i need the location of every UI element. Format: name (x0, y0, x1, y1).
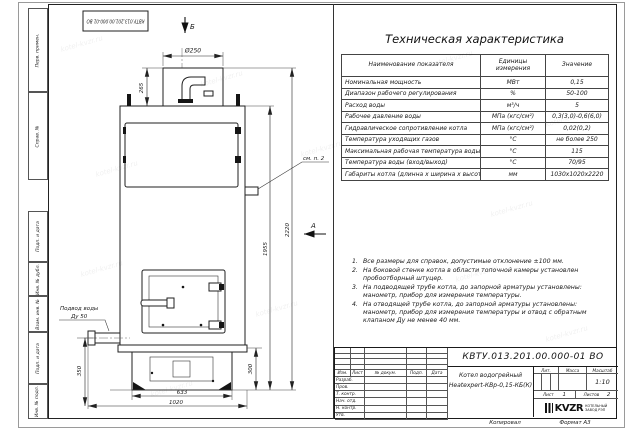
table-row: Температура воды (вход/выход)°С70/95 (342, 157, 609, 169)
view-a-arrow: А (304, 222, 326, 234)
note-item: 4.На отводящей трубе котла, до запорной … (352, 301, 604, 325)
table-row: Максимальная рабочая температура воды°С1… (342, 146, 609, 158)
sheet-count-row: Лист 1 Листов 2 (534, 391, 618, 399)
lit-label: Лит. (534, 367, 559, 374)
water-inlet-label: Подвод воды (60, 306, 99, 312)
format-label: Формат А3 (535, 420, 615, 426)
water-inlet: Подвод воды Ду 50 (59, 306, 130, 345)
manufacturer-logo: KVZR КОТЕЛЬНЫЙ ЗАВОД РЭП (534, 399, 618, 417)
doc-number-top-box: КВТУ.013.201.00.000-01 ВО (83, 11, 148, 31)
row-utv: Утв. (335, 413, 365, 420)
note-item: 3.На подводящей трубе котла, до запорной… (352, 284, 604, 300)
note-item: 1.Все размеры для справок, допустимые от… (352, 258, 604, 266)
door-handle (141, 300, 169, 306)
door-hinge (235, 127, 241, 134)
dim-diameter-250: Ø250 (163, 48, 223, 67)
col-list: Лист (351, 370, 365, 377)
product-name-line1: Котел водогрейный (448, 371, 533, 381)
scale-value: 1:10 (587, 374, 618, 391)
top-stud (236, 94, 240, 106)
callout-see-note-2: см. п. 2 (303, 156, 325, 162)
sheet-label: Лист (543, 392, 554, 397)
top-stud (127, 94, 131, 106)
svg-text:265: 265 (139, 82, 145, 93)
tech-characteristics-title: Техническая характеристика (341, 32, 608, 46)
col-header-name: Наименование показателя (342, 55, 481, 77)
table-row: Диапазон рабочего регулирования%50-100 (342, 88, 609, 100)
lit-mass-scale-header: Лит. Масса Масштаб (534, 367, 618, 374)
elbow-foot (204, 91, 213, 96)
title-block: Изм. Лист № докум. Подп. Дата Разраб. Пр… (334, 347, 617, 419)
dim-1955: 1955 (245, 106, 274, 390)
row-tkontr: Т. контр. (335, 391, 365, 398)
col-docnum: № докум. (365, 370, 407, 377)
base-pedestal (110, 345, 262, 390)
row-prov: Пров. (335, 384, 365, 391)
document-number: КВТУ.013.201.00.000-01 ВО (448, 348, 618, 367)
table-row: Габариты котла (длинна х ширина х высота… (342, 169, 609, 181)
view-b-arrow: Б (185, 17, 195, 33)
boiler-drawing: КВТУ.013.201.00.000-01 ВО Б Ø250 265 (30, 4, 334, 424)
svg-text:1020: 1020 (169, 400, 183, 406)
col-header-value: Значение (546, 55, 609, 77)
doc-number-top-text: КВТУ.013.201.00.000-01 ВО (86, 18, 144, 24)
view-a-label: А (310, 222, 316, 230)
table-row: Номинальная мощностьМВт0,15 (342, 77, 609, 89)
dim-300: 300 (247, 348, 262, 390)
note-item: 2.На боковой стенке котла в области топо… (352, 267, 604, 283)
col-podp: Подп. (407, 370, 427, 377)
kvzr-logo-subtext: КОТЕЛЬНЫЙ ЗАВОД РЭП (585, 404, 607, 412)
table-row: Гидравлическое сопротивление котлаМПа (к… (342, 123, 609, 135)
col-izm: Изм. (335, 370, 351, 377)
table-row: Расход водым³/ч5 (342, 100, 609, 112)
table-header-row: Наименование показателя Единицы измерени… (342, 55, 609, 77)
water-inlet-label: Ду 50 (70, 314, 88, 320)
svg-text:350: 350 (77, 365, 83, 376)
lower-door (141, 270, 225, 333)
kvzr-logo-icon (545, 403, 553, 413)
upper-door (123, 123, 241, 187)
dim-633: 633 (132, 390, 232, 400)
table-row: Температура уходящих газов°Сне более 250 (342, 134, 609, 146)
row-razrab: Разраб. (335, 377, 365, 384)
scale-label: Масштаб (587, 367, 618, 374)
svg-text:633: 633 (177, 390, 188, 396)
mass-label: Масса (559, 367, 587, 374)
kvzr-logo-text: KVZR (555, 403, 583, 414)
table-row: Рабочее давление водыМПа (кгс/см²)0,3(3,… (342, 111, 609, 123)
row-nkontr: Н. контр. (335, 406, 365, 413)
svg-text:2220: 2220 (285, 223, 291, 237)
tech-characteristics-table: Наименование показателя Единицы измерени… (341, 54, 609, 181)
sheet-value: 1 (563, 392, 567, 398)
col-data: Дата (427, 370, 448, 377)
product-name: Котел водогрейный Heatexpert-КВр-0,15-КБ… (448, 367, 534, 417)
sheets-value: 2 (607, 392, 611, 398)
row-nachotd: Нач. отд. (335, 398, 365, 405)
dim-265: 265 (139, 68, 163, 106)
sampling-fitting-callout: см. п. 2 (245, 156, 329, 195)
svg-text:1955: 1955 (263, 242, 269, 256)
product-name-line2: Heatexpert-КВр-0,15-КБ(К) (448, 381, 533, 391)
view-b-label: Б (190, 23, 195, 31)
sheets-label: Листов (584, 392, 600, 397)
door-hinge (235, 156, 241, 163)
dim-350: 350 (77, 338, 96, 406)
lit-mass-scale-values: 1:10 (534, 374, 618, 391)
svg-text:Ø250: Ø250 (184, 48, 201, 55)
notes-list: 1.Все размеры для справок, допустимые от… (352, 258, 604, 327)
chimney (163, 68, 223, 106)
svg-text:300: 300 (248, 363, 254, 374)
elbow-flange (178, 99, 193, 103)
title-block-left-grid: Изм. Лист № докум. Подп. Дата Разраб. Пр… (335, 348, 448, 417)
drawing-sheet: kotel-kvzr.ru kotel-kvzr.ru kotel-kvzr.r… (0, 0, 644, 430)
col-header-units: Единицы измерения (481, 55, 546, 77)
